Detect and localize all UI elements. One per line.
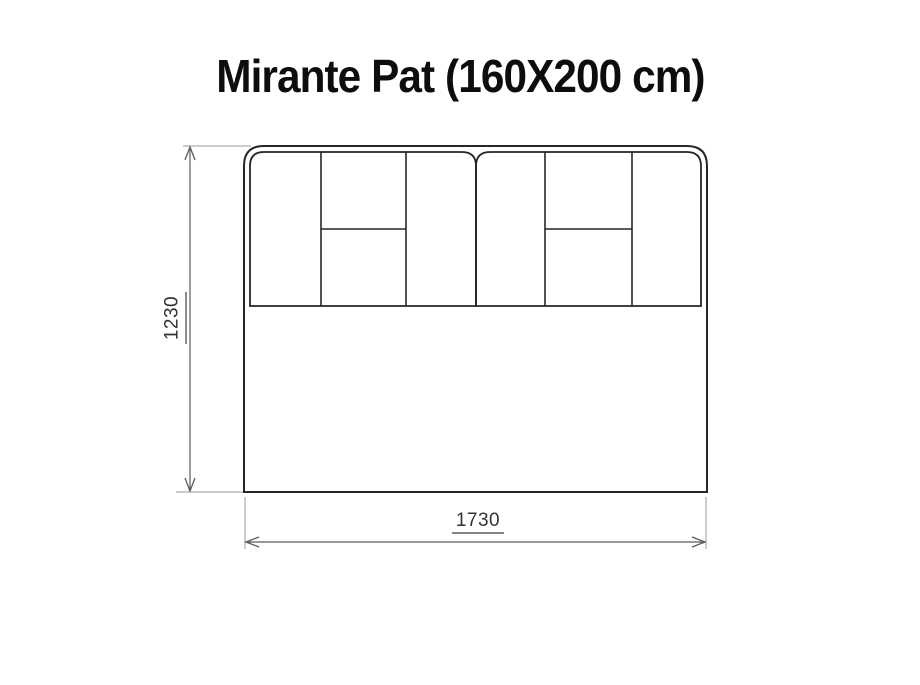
technical-drawing: 1230 1730	[0, 0, 920, 685]
width-dimension-label: 1730	[456, 510, 500, 531]
diagram-canvas: Mirante Pat (160X200 cm) 1230 1730	[0, 0, 920, 685]
height-dimension-label: 1230	[162, 296, 183, 340]
